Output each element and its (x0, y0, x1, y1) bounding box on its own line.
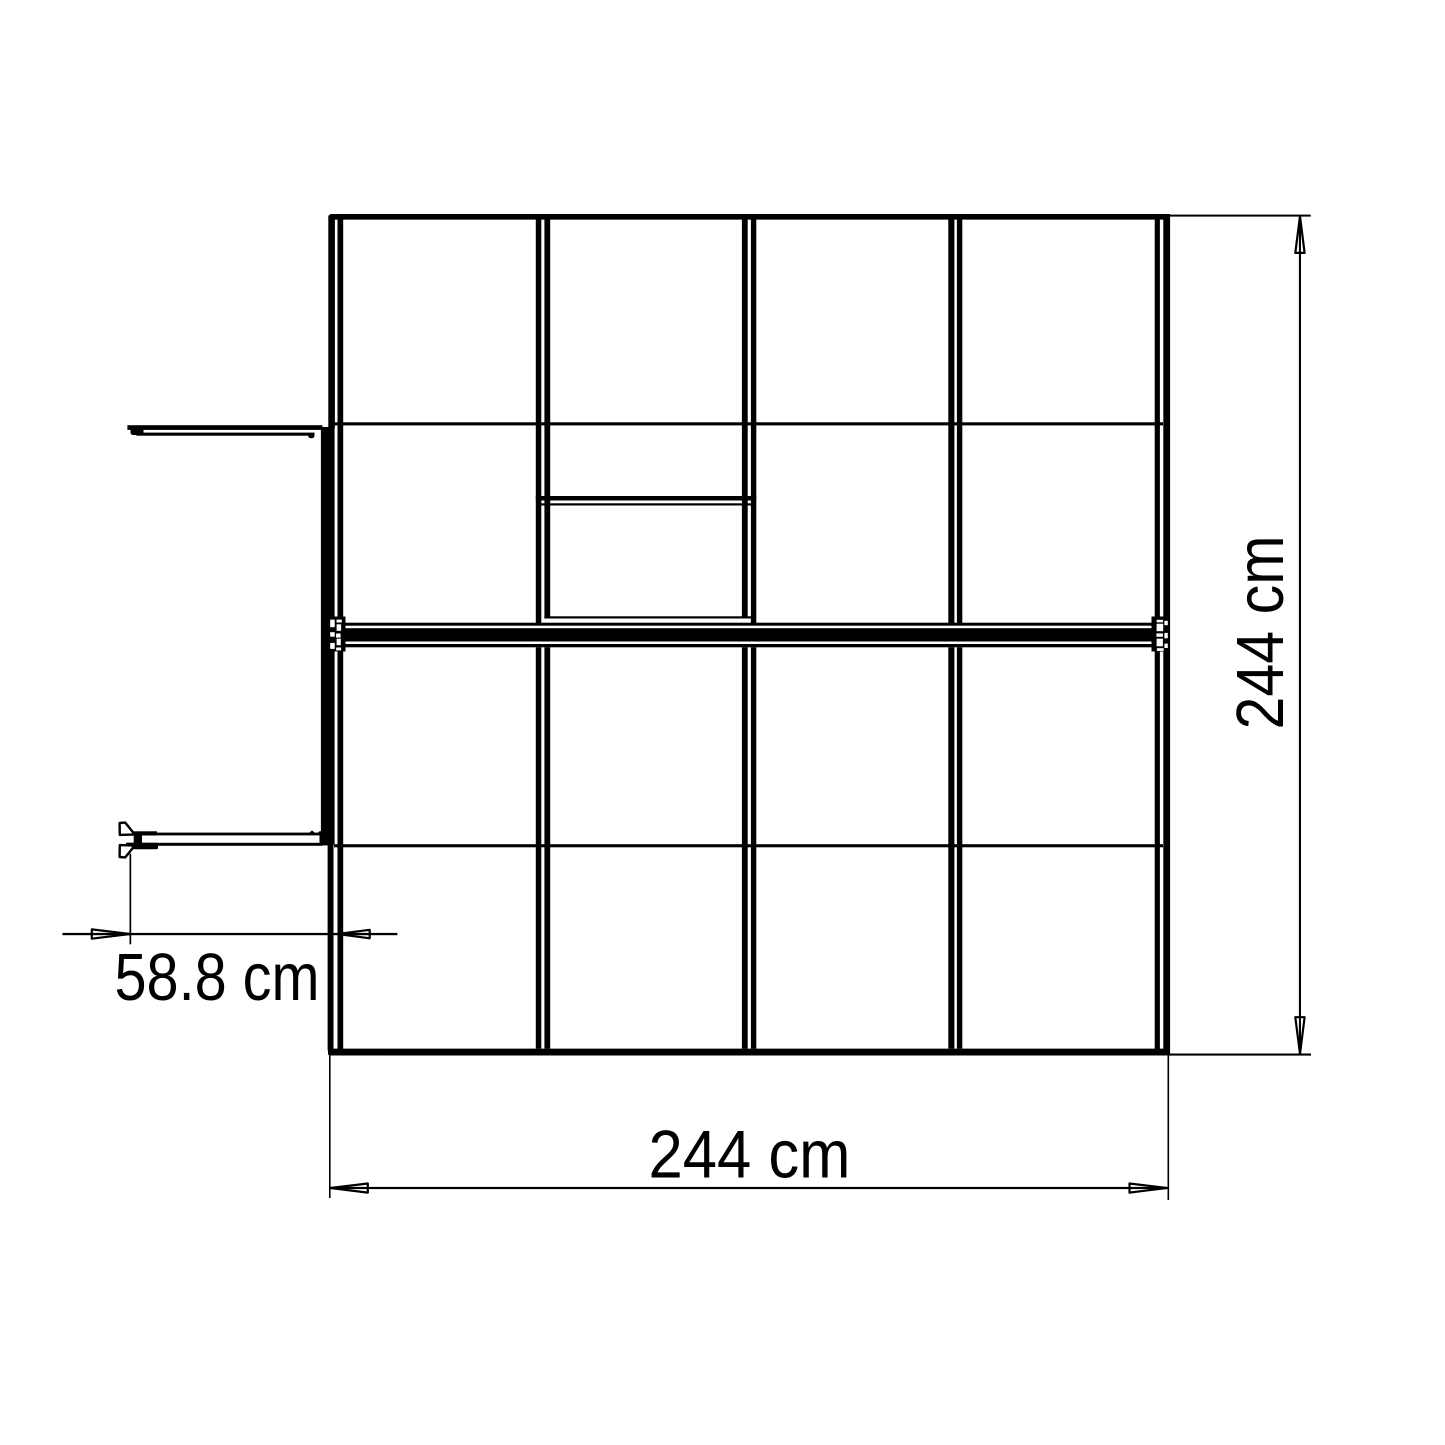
svg-text:58.8 cm: 58.8 cm (115, 941, 320, 1015)
svg-text:244 cm: 244 cm (649, 1117, 851, 1193)
svg-text:244 cm: 244 cm (1223, 536, 1298, 730)
